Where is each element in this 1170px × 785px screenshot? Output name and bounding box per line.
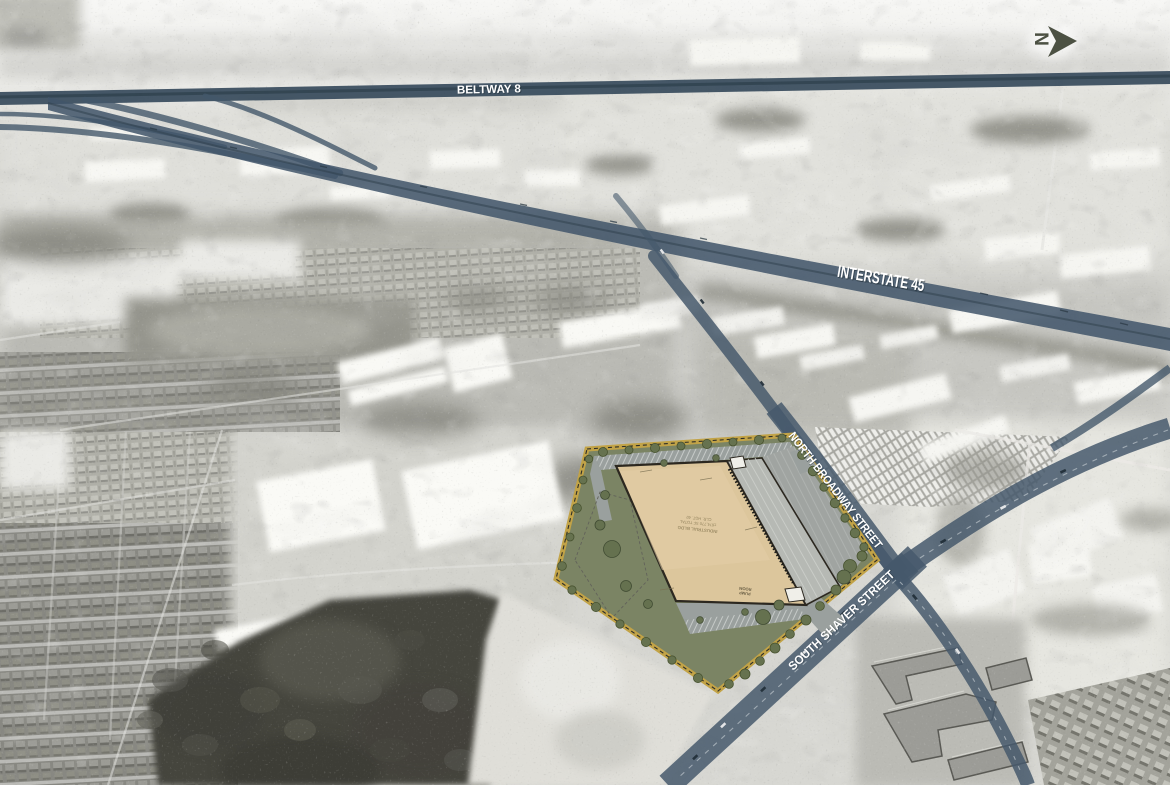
svg-text:N: N (1030, 32, 1051, 46)
svg-text:BELTWAY 8: BELTWAY 8 (457, 83, 522, 96)
